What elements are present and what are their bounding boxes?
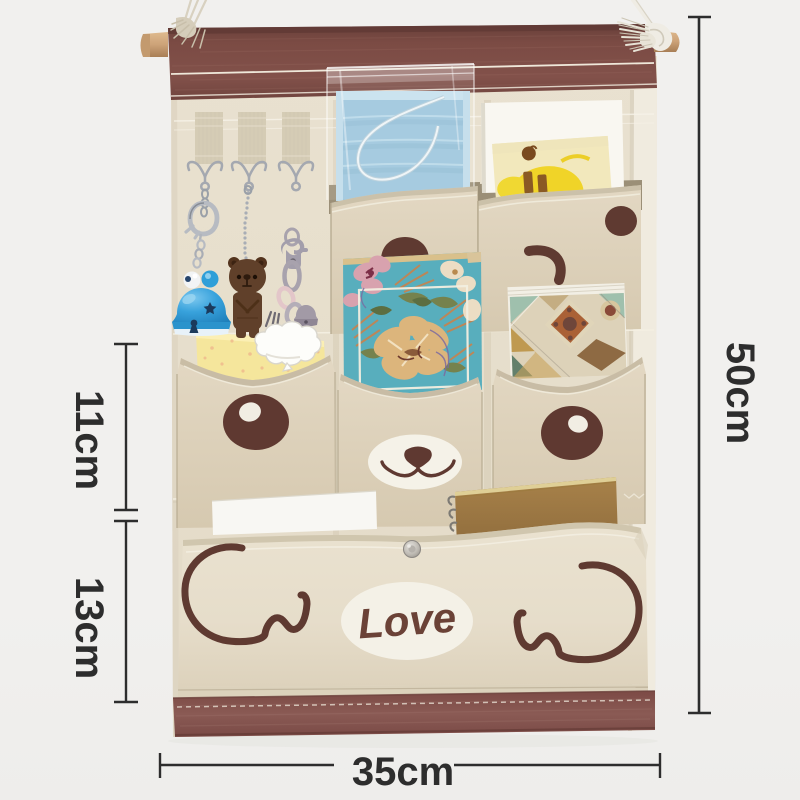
svg-text:11cm: 11cm (67, 390, 111, 490)
svg-text:13cm: 13cm (67, 577, 111, 679)
svg-text:35cm: 35cm (352, 750, 454, 794)
svg-text:50cm: 50cm (718, 342, 762, 444)
svg-text:Love: Love (356, 594, 457, 648)
